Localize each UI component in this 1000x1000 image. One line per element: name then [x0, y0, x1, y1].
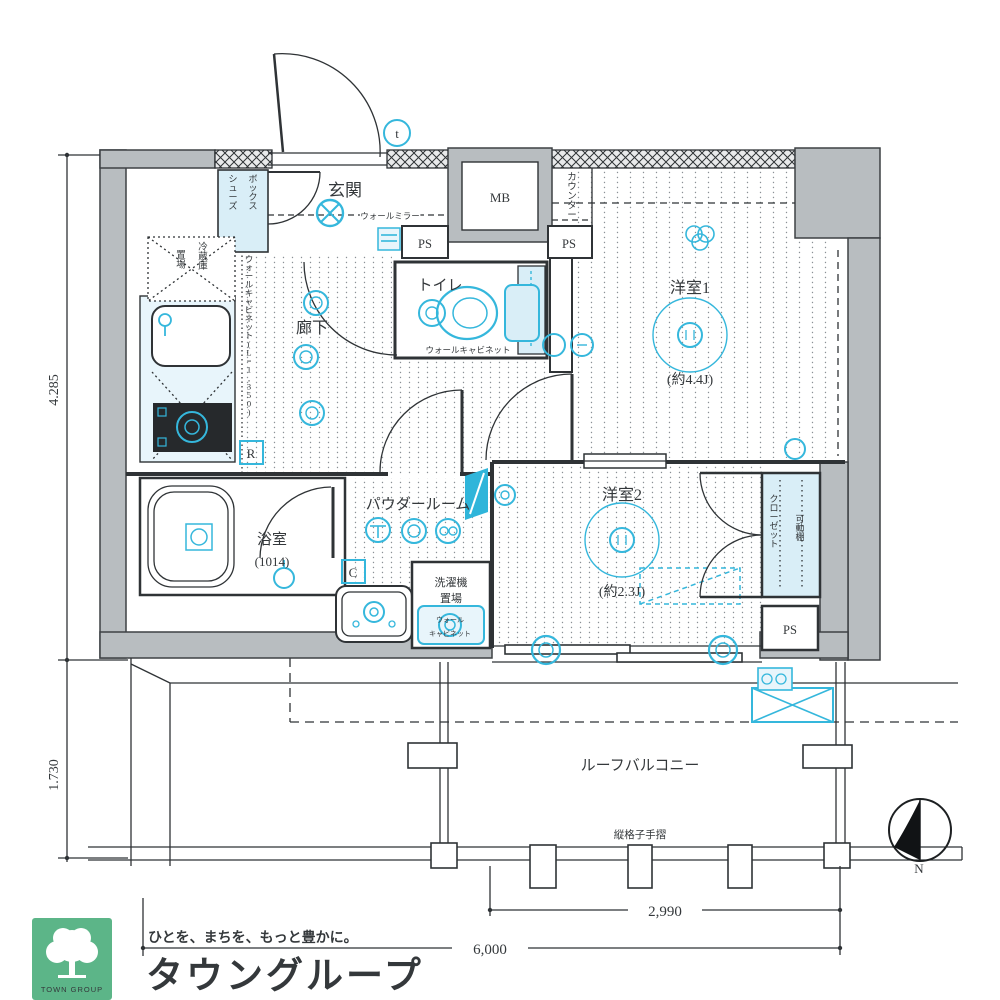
logo-en-label: TOWN GROUP [41, 985, 103, 994]
bath-size-label: (1014) [255, 554, 290, 569]
vanity-icon [336, 586, 412, 642]
movable-shelf-label: 可動棚 [795, 514, 804, 542]
compass-icon: N [889, 799, 951, 876]
washer-cabinet-label-line1: ウォール [436, 616, 464, 624]
ac-outdoor-unit-icon [752, 668, 833, 722]
logo-tagline: ひとを、まちを、もっと豊かに。 [148, 929, 358, 945]
stove-icon [153, 403, 232, 452]
toilet-wall-cabinet-label: ウォールキャビネット [425, 345, 510, 355]
hallway-label: 廊下 [296, 319, 328, 337]
western-room1-size-label: (約4.4J) [667, 372, 714, 388]
pipe-space-mid-label: PS [562, 237, 576, 251]
pipe-space-left-label: PS [418, 237, 432, 251]
c-symbol-label: C [349, 565, 358, 580]
fridge-space [148, 237, 235, 301]
shoes-box-label-col1: シューズ [228, 174, 237, 211]
bath-area [140, 478, 345, 595]
compass-north-label: N [914, 861, 924, 876]
pipe-space-right-label: PS [783, 623, 797, 637]
dim-bottom-outer: 6,000 [473, 942, 507, 958]
powder-room-label: パウダールーム [366, 496, 471, 513]
meter-box-label: MB [490, 190, 511, 205]
dim-bottom-inner: 2,990 [648, 904, 682, 920]
doorbell-icon [378, 228, 400, 250]
town-group-logo: TOWN GROUP ひとを、まちを、もっと豊かに。 タウングループ [32, 918, 424, 1000]
bath-label: 浴室 [257, 531, 287, 548]
western-room1-label: 洋室1 [670, 279, 710, 297]
fridge-label-col1: 冷蔵庫 [198, 241, 208, 272]
t-symbol-icon: t [384, 120, 410, 146]
western-room2-size-label: (約2.3J) [599, 584, 646, 600]
closet-label: クローゼット [769, 494, 778, 549]
r-symbol-label: R [247, 446, 256, 461]
dim-left-lower: 1.730 [47, 759, 62, 791]
floor-plan-page: t R [0, 0, 1000, 1000]
t-symbol-label: t [395, 126, 399, 141]
fridge-label-col2: 置場 [176, 250, 186, 271]
wall-mirror-label: ウォールミラー [360, 211, 420, 221]
entrance-label: 玄関 [328, 181, 362, 200]
balcony [88, 658, 962, 888]
western-room2-label: 洋室2 [602, 486, 642, 504]
ceiling-light-x-icon [317, 200, 343, 226]
shoes-box-label-col2: ボックス [248, 174, 257, 211]
toilet-label: トイレ [417, 278, 462, 294]
entrance-door-icon [274, 54, 380, 157]
floor-plan-drawing: t R [0, 0, 1000, 1000]
roof-balcony-label: ルーフバルコニー [581, 758, 700, 774]
washer-label-line1: 洗濯機 [435, 575, 468, 589]
washer-label-line2: 置場 [440, 592, 462, 605]
counter-label: カウンター [567, 172, 577, 221]
shoes-box-door-icon [268, 172, 320, 224]
dim-left-upper: 4.285 [47, 374, 62, 406]
logo-brand: タウングループ [146, 955, 424, 996]
lattice-handrail-label: 縦格子手摺 [614, 828, 667, 841]
sink-icon [152, 306, 230, 366]
washer-cabinet-label-line2: キャビネット [429, 629, 471, 638]
